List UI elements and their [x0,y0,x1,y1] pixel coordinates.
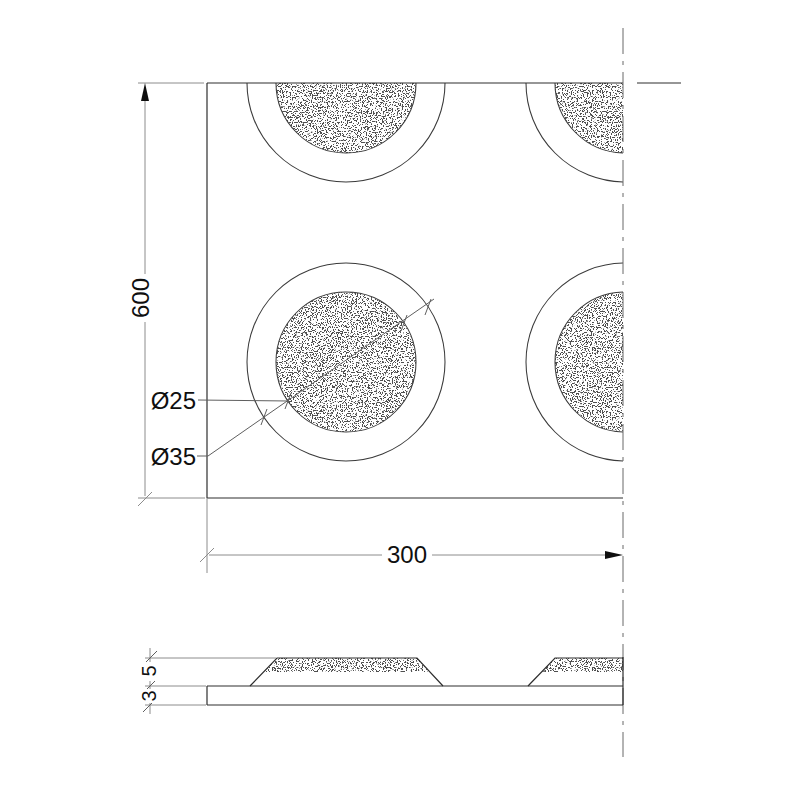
dome-stipple [276,292,416,432]
inner-diameter-label: Ø25 [151,387,196,414]
plate-thickness-label: 3 [138,690,160,701]
dome-section-stipple [264,658,430,672]
dome-section-stipple [542,658,623,672]
drawing-canvas: 600 300 Ø25 Ø35 [0,0,800,800]
outer-diameter-label: Ø35 [151,443,196,470]
height-dimension-label: 600 [127,278,154,318]
width-dimension-label: 300 [387,541,427,568]
technical-drawing: 600 300 Ø25 Ø35 [0,0,800,800]
dome-height-label: 5 [138,665,160,676]
